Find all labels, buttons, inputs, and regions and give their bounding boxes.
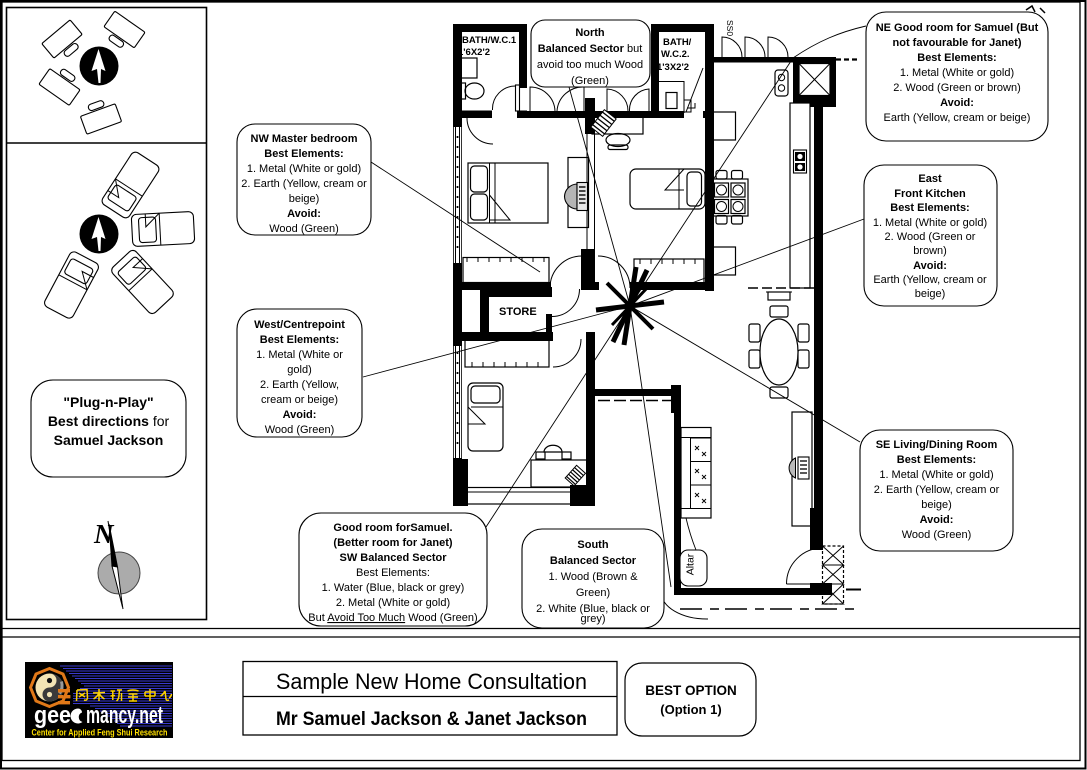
- svg-text:Best directions for: Best directions for: [48, 413, 170, 429]
- svg-text:1. Metal (White or gold): 1. Metal (White or gold): [900, 67, 1014, 79]
- svg-text:Wood (Green): Wood (Green): [269, 223, 339, 235]
- svg-text:SW Balanced Sector: SW Balanced Sector: [340, 552, 448, 564]
- svg-text:1'3X2'2: 1'3X2'2: [657, 62, 689, 73]
- svg-text:1. Water (Blue, black or grey): 1. Water (Blue, black or grey): [322, 582, 465, 594]
- svg-text:Avoid:: Avoid:: [913, 260, 947, 272]
- svg-text:beige): beige): [915, 288, 946, 300]
- svg-text:2. Earth (Yellow, cream or: 2. Earth (Yellow, cream or: [874, 484, 1000, 496]
- svg-text:2. Earth (Yellow, cream or: 2. Earth (Yellow, cream or: [241, 178, 367, 190]
- svg-text:avoid too much Wood: avoid too much Wood: [537, 59, 643, 71]
- svg-text:Best Elements:: Best Elements:: [917, 52, 996, 64]
- svg-text:Best Elements:: Best Elements:: [260, 334, 339, 346]
- svg-text:2. Earth (Yellow,: 2. Earth (Yellow,: [260, 379, 339, 391]
- svg-text:Altar: Altar: [685, 553, 697, 575]
- svg-text:Best Elements:: Best Elements:: [890, 202, 969, 214]
- svg-text:brown): brown): [913, 245, 947, 257]
- svg-text:Balanced Sector but: Balanced Sector but: [538, 43, 643, 55]
- svg-text:1. Wood (Brown &: 1. Wood (Brown &: [548, 571, 638, 583]
- svg-text:mancy.net: mancy.net: [86, 702, 163, 729]
- svg-text:Earth (Yellow, cream or beige): Earth (Yellow, cream or beige): [884, 112, 1031, 124]
- svg-text:Best Elements:: Best Elements:: [897, 454, 976, 466]
- svg-text:Sample New Home Consultation: Sample New Home Consultation: [276, 669, 587, 694]
- svg-text:W.C.2.: W.C.2.: [661, 49, 690, 60]
- svg-text:Balanced Sector: Balanced Sector: [550, 555, 637, 567]
- svg-text:not favourable for Janet): not favourable for Janet): [893, 37, 1022, 49]
- svg-text:BATH/W.C.1: BATH/W.C.1: [462, 35, 517, 46]
- svg-text:STORE: STORE: [499, 306, 537, 318]
- svg-text:(Green): (Green): [571, 75, 609, 87]
- svg-text:BATH/: BATH/: [663, 37, 692, 48]
- svg-text:North: North: [575, 27, 605, 39]
- svg-text:beige): beige): [289, 193, 320, 205]
- svg-text:SS0: SS0: [725, 20, 735, 36]
- svg-text:BEST OPTION: BEST OPTION: [645, 683, 737, 698]
- svg-text:NE Good room for Samuel (But: NE Good room for Samuel (But: [876, 22, 1039, 34]
- svg-text:1'6X2'2: 1'6X2'2: [458, 47, 490, 58]
- svg-text:Good room forSamuel.: Good room forSamuel.: [333, 522, 452, 534]
- svg-text:But Avoid Too Much Wood (Green: But Avoid Too Much Wood (Green): [308, 612, 477, 624]
- svg-text:gold): gold): [287, 364, 311, 376]
- svg-text:Mr Samuel Jackson & Janet Jack: Mr Samuel Jackson & Janet Jackson: [276, 709, 587, 730]
- svg-text:Best Elements:: Best Elements:: [356, 567, 430, 579]
- svg-text:1. Metal (White or: 1. Metal (White or: [256, 349, 343, 361]
- svg-text:Center for Applied Feng Shui R: Center for Applied Feng Shui Research: [32, 728, 168, 739]
- svg-text:2. Metal (White or gold): 2. Metal (White or gold): [336, 597, 450, 609]
- svg-text:beige): beige): [921, 499, 952, 511]
- svg-text:grey): grey): [580, 613, 605, 625]
- svg-text:(Option 1): (Option 1): [660, 702, 721, 717]
- svg-text:Green): Green): [576, 587, 610, 599]
- svg-text:Avoid:: Avoid:: [283, 409, 317, 421]
- svg-text:Wood (Green): Wood (Green): [902, 529, 972, 541]
- svg-text:1. Metal (White or gold): 1. Metal (White or gold): [879, 469, 993, 481]
- svg-text:SE Living/Dining Room: SE Living/Dining Room: [876, 439, 998, 451]
- svg-text:Earth (Yellow, cream or: Earth (Yellow, cream or: [873, 274, 987, 286]
- svg-text:Avoid:: Avoid:: [920, 514, 954, 526]
- svg-text:2. Wood (Green or brown): 2. Wood (Green or brown): [893, 82, 1021, 94]
- svg-text:Front Kitchen: Front Kitchen: [894, 188, 966, 200]
- svg-text:Avoid:: Avoid:: [287, 208, 321, 220]
- svg-text:1. Metal (White or gold): 1. Metal (White or gold): [247, 163, 361, 175]
- svg-text:gee: gee: [34, 702, 71, 729]
- svg-text:East: East: [918, 173, 942, 185]
- svg-text:Best Elements:: Best Elements:: [264, 148, 343, 160]
- svg-text:Samuel Jackson: Samuel Jackson: [54, 432, 164, 448]
- svg-text:"Plug-n-Play": "Plug-n-Play": [63, 394, 153, 410]
- svg-text:Avoid:: Avoid:: [940, 97, 974, 109]
- svg-text:cream or beige): cream or beige): [261, 394, 338, 406]
- svg-text:2. Wood (Green or: 2. Wood (Green or: [885, 231, 976, 243]
- svg-text:NW Master bedroom: NW Master bedroom: [251, 133, 358, 145]
- svg-text:Wood (Green): Wood (Green): [265, 424, 335, 436]
- svg-text:1. Metal (White or gold): 1. Metal (White or gold): [873, 217, 987, 229]
- svg-text:South: South: [577, 539, 608, 551]
- svg-text:West/Centrepoint: West/Centrepoint: [254, 319, 345, 331]
- svg-text:(Better room for Janet): (Better room for Janet): [333, 537, 453, 549]
